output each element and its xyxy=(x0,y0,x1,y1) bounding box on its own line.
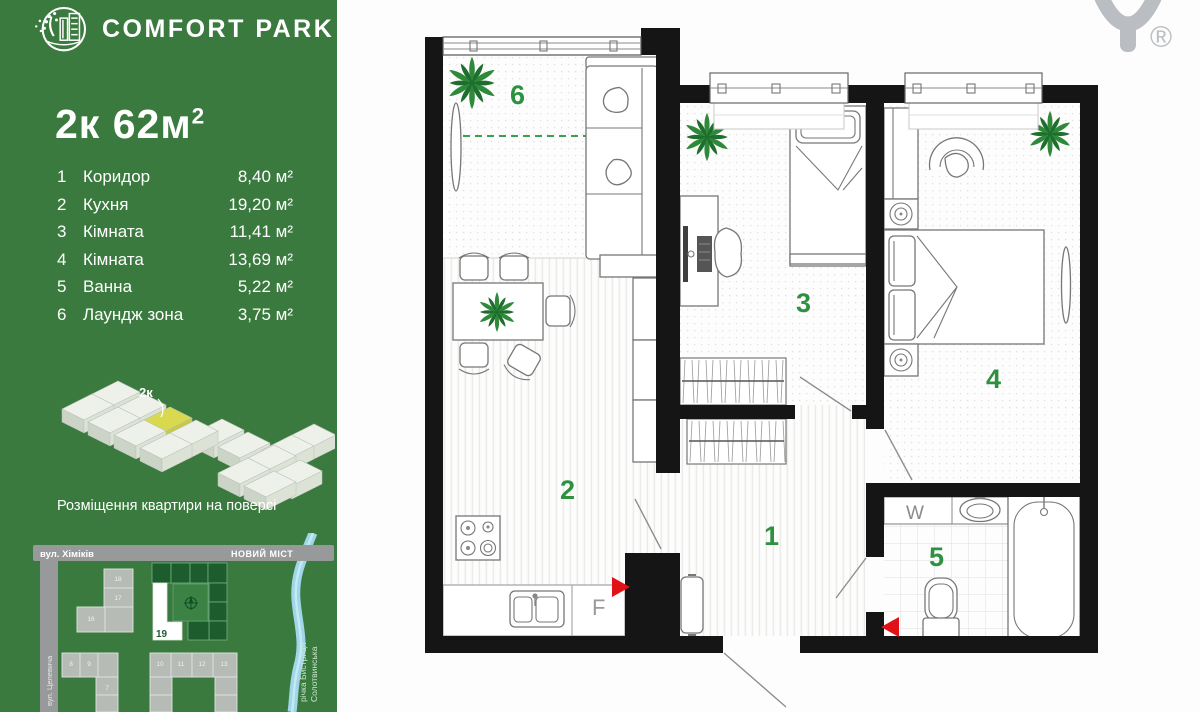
room-list-item: 5Ванна5,22 м² xyxy=(57,278,293,295)
sofa-side-table xyxy=(600,255,658,277)
window-room3 xyxy=(710,73,848,129)
svg-text:11: 11 xyxy=(178,661,185,668)
wardrobe-room3 xyxy=(680,358,786,405)
fridge-label: F xyxy=(592,595,605,620)
street-top-label: вул. Хіміків xyxy=(40,549,94,560)
radiator xyxy=(681,575,703,635)
svg-text:17: 17 xyxy=(114,595,122,602)
label-room3: 3 xyxy=(796,288,811,318)
svg-text:9: 9 xyxy=(87,661,91,668)
brand-logo-icon xyxy=(16,2,108,60)
room-area: 13,69 м² xyxy=(228,251,293,268)
label-bath: 5 xyxy=(929,542,944,572)
floor-mirror xyxy=(451,103,461,191)
iso-building-blocks xyxy=(62,381,335,510)
street-left-label: вул. Целевича xyxy=(45,655,54,706)
sidebar: COMFORT PARK 2к 62м2 1Коридор8,40 м² 2Ку… xyxy=(0,0,337,712)
window-lounge xyxy=(443,37,641,55)
label-room4: 4 xyxy=(986,364,1001,394)
room-list-item: 2Кухня19,20 м² xyxy=(57,196,293,213)
unit-highlight-label: 2к xyxy=(139,385,153,400)
nightstand xyxy=(884,344,918,376)
sofa xyxy=(586,57,658,259)
page: COMFORT PARK 2к 62м2 1Коридор8,40 м² 2Ку… xyxy=(0,0,1200,712)
floor-diagram-caption: Розміщення квартири на поверсі xyxy=(57,498,276,514)
unit-title-sup: 2 xyxy=(192,103,206,128)
room-name: Кімната xyxy=(83,251,228,268)
room-area: 8,40 м² xyxy=(238,168,293,185)
bed-single xyxy=(790,106,866,266)
room-list-item: 1Коридор8,40 м² xyxy=(57,168,293,185)
river-label-1: річка Бистриця xyxy=(298,642,308,702)
floor-textures xyxy=(443,55,1080,636)
window-room4 xyxy=(905,73,1042,129)
unit-title-text: 2к 62м xyxy=(55,101,192,147)
room-name: Кухня xyxy=(83,196,228,213)
kitchen-sink xyxy=(510,591,564,627)
room-list: 1Коридор8,40 м² 2Кухня19,20 м² 3Кімната1… xyxy=(57,168,293,333)
wall-mirror xyxy=(1062,247,1071,323)
room-area: 3,75 м² xyxy=(238,306,293,323)
kitchen-cabinets xyxy=(633,278,658,462)
room-name: Коридор xyxy=(83,168,238,185)
bridge-label: НОВИЙ МІСТ xyxy=(231,548,293,559)
room-area: 5,22 м² xyxy=(238,278,293,295)
washer-and-sink-counter xyxy=(884,495,1008,524)
desk-chair xyxy=(714,228,741,277)
label-lounge: 6 xyxy=(510,80,525,110)
river-label-2: Солотвинська xyxy=(309,646,319,702)
room-list-item: 6Лаундж зона3,75 м² xyxy=(57,306,293,323)
label-kitchen: 2 xyxy=(560,475,575,505)
room-name: Лаундж зона xyxy=(83,306,238,323)
floor-plan: F W 1 2 3 4 5 6 ® xyxy=(337,0,1200,712)
room-list-item: 4Кімната13,69 м² xyxy=(57,251,293,268)
bed-double xyxy=(884,230,1044,344)
entrance-door-swing xyxy=(724,653,786,707)
keyboard xyxy=(697,236,712,272)
toilet xyxy=(923,578,959,645)
svg-text:18: 18 xyxy=(114,576,122,583)
room-num: 4 xyxy=(57,251,83,268)
developer-logo: ® xyxy=(1101,0,1172,54)
brand-name: COMFORT PARK xyxy=(102,15,334,44)
room-num: 2 xyxy=(57,196,83,213)
svg-text:8: 8 xyxy=(69,661,73,668)
svg-text:7: 7 xyxy=(105,685,109,692)
svg-text:16: 16 xyxy=(87,616,95,623)
svg-text:12: 12 xyxy=(198,661,206,668)
svg-text:13: 13 xyxy=(220,661,228,668)
washer-label: W xyxy=(906,503,924,524)
svg-text:10: 10 xyxy=(156,661,164,668)
floor-position-diagram: 2к xyxy=(30,358,335,510)
registered-mark: ® xyxy=(1150,21,1172,54)
bathtub xyxy=(1008,495,1080,645)
room-num: 3 xyxy=(57,223,83,240)
room-list-item: 3Кімната11,41 м² xyxy=(57,223,293,240)
room-name: Ванна xyxy=(83,278,238,295)
room-num: 6 xyxy=(57,306,83,323)
nightstand xyxy=(884,199,918,229)
wardrobe-corridor xyxy=(687,419,786,464)
desk xyxy=(680,196,718,306)
room-num: 5 xyxy=(57,278,83,295)
room-num: 1 xyxy=(57,168,83,185)
highlighted-building-label: 19 xyxy=(156,629,168,640)
label-corridor: 1 xyxy=(764,521,779,551)
location-map: вул. Хіміків НОВИЙ МІСТ вул. Целевича рі… xyxy=(0,533,337,712)
room-area: 19,20 м² xyxy=(228,196,293,213)
room-name: Кімната xyxy=(83,223,230,240)
room-area: 11,41 м² xyxy=(230,223,293,240)
unit-title: 2к 62м2 xyxy=(55,101,205,148)
stove xyxy=(456,516,500,560)
